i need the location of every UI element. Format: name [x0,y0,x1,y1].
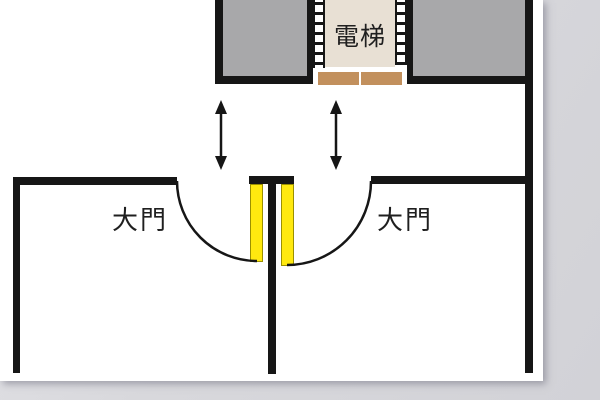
door-swing-arc-right [287,181,371,265]
up-down-arrow-icon [215,100,227,170]
photo-background: 電梯 大門 [0,0,600,400]
main-door-label-left: 大門 [112,200,168,237]
main-door-label-right: 大門 [377,200,433,237]
floorplan-page: 電梯 大門 [0,0,543,381]
up-down-arrow-icon [330,100,342,170]
swing-arcs-and-arrows [0,0,543,381]
door-swing-arc-left [177,181,257,261]
